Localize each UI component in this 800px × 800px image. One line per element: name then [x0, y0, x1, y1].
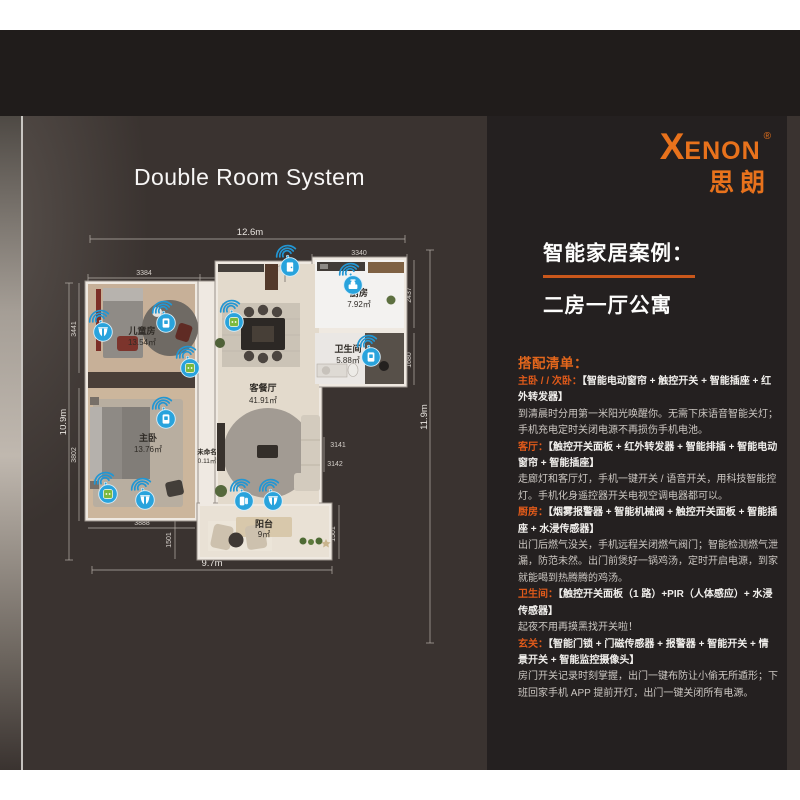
section-desc: 起夜不用再摸黑找开关啦！ — [518, 620, 778, 636]
device-list: 【智能门锁 + 门磁传感器 + 报警器 + 智能开关 + 情景开关 + 智能监控… — [518, 639, 769, 666]
plant — [215, 485, 227, 497]
room-label: 卫生间： — [518, 589, 558, 600]
registered-mark: ® — [764, 131, 771, 142]
plant — [300, 538, 307, 545]
orange-divider — [543, 275, 695, 278]
section-desc: 到清晨时分用第一米阳光唤醒你。无需下床语音智能关灯；手机充电定时关闭电源不再损伤… — [518, 407, 778, 440]
brand-logo: XENON® 思朗 — [660, 128, 771, 196]
dim-left-2: 3802 — [71, 447, 78, 463]
plant — [387, 296, 396, 305]
info-panel: XENON® 思朗 智能家居案例： 二房一厅公寓 搭配清单： 主卧 / / 次卧… — [487, 116, 787, 770]
config-sections: 主卧 / / 次卧：【智能电动窗帘 + 触控开关 + 智能插座 + 红外转发器】… — [518, 374, 778, 702]
section-devices-line: 卫生间：【触控开关面板（1 路）+PIR（人体感应）+ 水浸传感器】 — [518, 587, 778, 620]
floor-plan: 12.6m 3384 2747 1081 3340 10.9m 3441 380… — [60, 225, 510, 655]
room-area-bathroom: 5.88㎡ — [336, 356, 360, 365]
flyer-page: Double Room System — [0, 0, 800, 800]
plant — [215, 338, 225, 348]
room-name-master: 主卧 — [139, 432, 157, 443]
room-area-master: 13.76㎡ — [134, 445, 162, 454]
section-desc: 出门后燃气没关，手机远程关闭燃气阀门；智能检测燃气泄漏，防范未然。出门前煲好一锅… — [518, 538, 778, 587]
dim-left-1: 3441 — [71, 321, 78, 337]
left-photo-strip — [0, 116, 21, 770]
kitchen-shelf — [368, 262, 404, 273]
entry-cabinet — [265, 264, 278, 290]
dim-balcony-left: 1501 — [166, 532, 173, 548]
case-title-block: 智能家居案例： 二房一厅公寓 — [543, 236, 695, 318]
section-kitchen: 厨房：【烟雾报警器 + 智能机械阀 + 触控开关面板 + 智能插座 + 水浸传感… — [518, 505, 778, 587]
logo-text-x: X — [660, 126, 685, 167]
dim-left-overall: 10.9m — [60, 409, 69, 435]
device-list: 【烟雾报警器 + 智能机械阀 + 触控开关面板 + 智能插座 + 水浸传感器】 — [518, 507, 777, 534]
room-name-balcony: 阳台 — [255, 518, 273, 529]
dim-top-right: 3340 — [351, 250, 367, 257]
room-name-living: 客餐厅 — [248, 382, 276, 393]
dim-mid-2: 3142 — [327, 461, 343, 468]
room-label: 玄关： — [518, 639, 548, 650]
bath-stool — [379, 361, 389, 371]
section-desc: 走廊灯和客厅灯，手机一键开关 / 语音开关，用科技智能控灯。手机化身遥控器开关电… — [518, 472, 778, 505]
bath-vanity — [317, 364, 347, 377]
logo-en: XENON® — [660, 128, 771, 167]
page-title: Double Room System — [134, 164, 365, 191]
section-bedrooms: 主卧 / / 次卧：【智能电动窗帘 + 触控开关 + 智能插座 + 红外转发器】… — [518, 374, 778, 440]
dim-top-overall: 12.6m — [237, 227, 263, 238]
balcony-table — [229, 533, 244, 548]
case-subtitle: 二房一厅公寓 — [543, 288, 695, 318]
room-name-unnamed: 未命名 — [197, 447, 217, 456]
list-heading: 搭配清单： — [518, 352, 588, 372]
section-devices-line: 客厅：【触控开关面板 + 红外转发器 + 智能排插 + 智能电动窗帘 + 智能插… — [518, 440, 778, 473]
room-label: 主卧 / / 次卧： — [518, 376, 582, 387]
room-area-childroom: 13.54㎡ — [128, 338, 156, 347]
room-area-unnamed: 0.11㎡ — [198, 456, 217, 465]
room-label: 客厅： — [518, 442, 548, 453]
tv-console — [217, 423, 225, 471]
top-dark-band — [0, 30, 800, 116]
coffee-table — [257, 445, 278, 458]
section-bathroom: 卫生间：【触控开关面板（1 路）+PIR（人体感应）+ 水浸传感器】 起夜不用再… — [518, 587, 778, 636]
room-area-living: 41.91㎡ — [249, 396, 277, 405]
logo-text-rest: ENON — [684, 137, 760, 165]
plant — [308, 539, 314, 545]
section-entrance: 玄关：【智能门锁 + 门磁传感器 + 报警器 + 智能开关 + 情景开关 + 智… — [518, 637, 778, 703]
section-devices-line: 厨房：【烟雾报警器 + 智能机械阀 + 触控开关面板 + 智能插座 + 水浸传感… — [518, 505, 778, 538]
toilet — [348, 364, 358, 377]
logo-chinese: 思朗 — [660, 170, 771, 196]
room-area-balcony: 9㎡ — [258, 530, 270, 539]
section-desc: 房门开关记录时刻掌握，出门一键布防让小偷无所遁形；下班回家手机 APP 提前开灯… — [518, 669, 778, 702]
device-list: 【触控开关面板 + 红外转发器 + 智能排插 + 智能电动窗帘 + 智能插座】 — [518, 442, 777, 469]
plant — [316, 538, 323, 545]
section-devices-line: 主卧 / / 次卧：【智能电动窗帘 + 触控开关 + 智能插座 + 红外转发器】 — [518, 374, 778, 407]
dim-top-1: 3384 — [136, 270, 152, 277]
section-livingroom: 客厅：【触控开关面板 + 红外转发器 + 智能排插 + 智能电动窗帘 + 智能插… — [518, 440, 778, 506]
dim-right-overall: 11.9m — [419, 404, 430, 430]
section-devices-line: 玄关：【智能门锁 + 门磁传感器 + 报警器 + 智能开关 + 情景开关 + 智… — [518, 637, 778, 670]
room-area-kitchen: 7.92㎡ — [347, 300, 371, 309]
case-title: 智能家居案例： — [543, 236, 695, 266]
dim-mid-1: 3141 — [330, 442, 346, 449]
left-divider-line — [21, 116, 23, 770]
room-name-childroom: 儿童房 — [127, 325, 155, 336]
room-label: 厨房： — [518, 507, 548, 518]
